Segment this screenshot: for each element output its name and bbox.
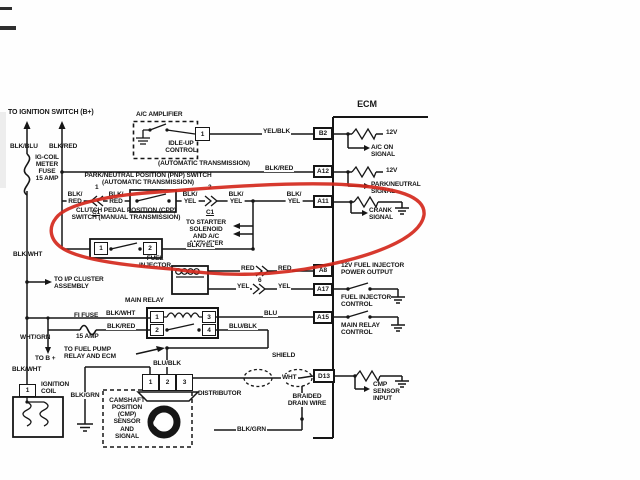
wiring-diagram: 1B2A12A11A8A17A15D131324121231 TO IGNITI… bbox=[0, 0, 640, 480]
to-ip-cluster-label: TO I/P CLUSTER ASSEMBLY bbox=[54, 276, 104, 290]
idle-up-control-label: IDLE-UP CONTROL bbox=[165, 140, 196, 154]
park-neutral-signal-label: PARK/NEUTRAL SIGNAL bbox=[371, 181, 421, 195]
cpp-switch-label: CLUTCH PEDAL POSITION (CPP) SWITCH (MANU… bbox=[72, 207, 181, 221]
shield-label: SHIELD bbox=[272, 352, 295, 359]
ig-coil-fuse-label: IG-COIL METER FUSE 15 AMP bbox=[35, 154, 59, 183]
main-relay-label: MAIN RELAY bbox=[125, 297, 164, 304]
pin-2-pnp-label: 2 bbox=[208, 184, 212, 191]
blu-a15-label: BLU bbox=[263, 310, 278, 317]
to-fuel-pump-label: TO FUEL PUMP RELAY AND ECM bbox=[64, 346, 116, 360]
red-wire-label-1: RED bbox=[240, 265, 255, 272]
fi-fuse-label: FI FUSE bbox=[74, 312, 98, 319]
ignition-coil-label: IGNITION COIL bbox=[41, 381, 69, 395]
fuel-inj-control-label: FUEL INJECTOR CONTROL bbox=[341, 294, 391, 308]
pin-6-label: 6 bbox=[258, 277, 262, 284]
blu-blk-relay-label: BLU/BLK bbox=[228, 323, 258, 330]
blk-red-pnp-right-label: BLK/ RED bbox=[108, 191, 125, 205]
yel-wire-label-1: YEL bbox=[236, 283, 250, 290]
blk-red-a12-label: BLK/RED bbox=[264, 165, 294, 172]
12v-b2-label: 12V bbox=[386, 129, 397, 136]
fuel-injector-label: FUEL INJECTOR bbox=[139, 255, 171, 269]
blk-grn-bottom-label: BLK/GRN bbox=[236, 426, 267, 433]
to-b-plus-label: TO B + bbox=[35, 355, 55, 362]
blk-yel-pnp-right-label: BLK/ YEL bbox=[228, 191, 245, 205]
ac-on-signal-label: A/C ON SIGNAL bbox=[371, 144, 395, 158]
pnp-switch-label: PARK/NEUTRAL POSITION (PNP) SWITCH (AUTO… bbox=[84, 172, 211, 186]
fi-fuse-amp-label: 15 AMP bbox=[76, 333, 99, 340]
wht-label: WHT bbox=[281, 374, 298, 381]
blk-wht-coil-label: BLK/WHT bbox=[12, 366, 41, 373]
blk-yel-a11-label: BLK/ YEL bbox=[286, 191, 303, 205]
fuel-inj-power-label: 12V FUEL INJECTOR POWER OUTPUT bbox=[341, 262, 404, 276]
blk-yel-pnp-left-label: BLK/ YEL bbox=[182, 191, 199, 205]
wht-grn-label: WHT/GRN bbox=[20, 334, 50, 341]
blk-red-top-label: BLK/RED bbox=[49, 143, 77, 150]
distributor-label: DISTRIBUTOR bbox=[198, 390, 241, 397]
yel-blk-label: YEL/BLK bbox=[262, 128, 291, 135]
yel-wire-label-2: YEL bbox=[277, 283, 291, 290]
cmp-sensor-input-label: CMP SENSOR INPUT bbox=[373, 381, 400, 402]
blk-red-pnp-left-label: BLK/ RED bbox=[67, 191, 84, 205]
automatic-transmission-label: (AUTOMATIC TRANSMISSION) bbox=[158, 160, 250, 167]
blk-wht-relay-label: BLK/WHT bbox=[105, 310, 136, 317]
ecm-label: ECM bbox=[357, 100, 377, 110]
red-wire-label-2: RED bbox=[277, 265, 292, 272]
blu-blk-dist-label: BLU/BLK bbox=[152, 360, 182, 367]
main-relay-control-label: MAIN RELAY CONTROL bbox=[341, 322, 380, 336]
blk-grn-dist-label: BLK/GRN bbox=[70, 392, 101, 399]
blk-red-relay-label: BLK/RED bbox=[106, 323, 136, 330]
crank-signal-label: CRANK SIGNAL bbox=[369, 207, 393, 221]
blk-blu-label: BLK/BLU bbox=[10, 143, 38, 150]
c1-right-label: C1 bbox=[206, 209, 214, 216]
blk-yel-cpp-label: BLK/YEL bbox=[186, 242, 215, 249]
ac-amplifier-label: A/C AMPLIFIER bbox=[136, 111, 183, 118]
pin-1-pnp-label: 1 bbox=[95, 184, 99, 191]
blk-wht-left-label: BLK/WHT bbox=[13, 251, 42, 258]
to-ignition-switch-label: TO IGNITION SWITCH (B+) bbox=[8, 109, 94, 117]
cmp-sensor-label: CAMSHAFT POSITION (CMP) SENSOR AND SIGNA… bbox=[109, 397, 145, 440]
braided-drain-label: BRAIDED DRAIN WIRE bbox=[287, 393, 327, 407]
labels-layer: TO IGNITION SWITCH (B+)BLK/BLUBLK/REDIG-… bbox=[0, 0, 640, 480]
12v-a12-label: 12V bbox=[386, 167, 397, 174]
